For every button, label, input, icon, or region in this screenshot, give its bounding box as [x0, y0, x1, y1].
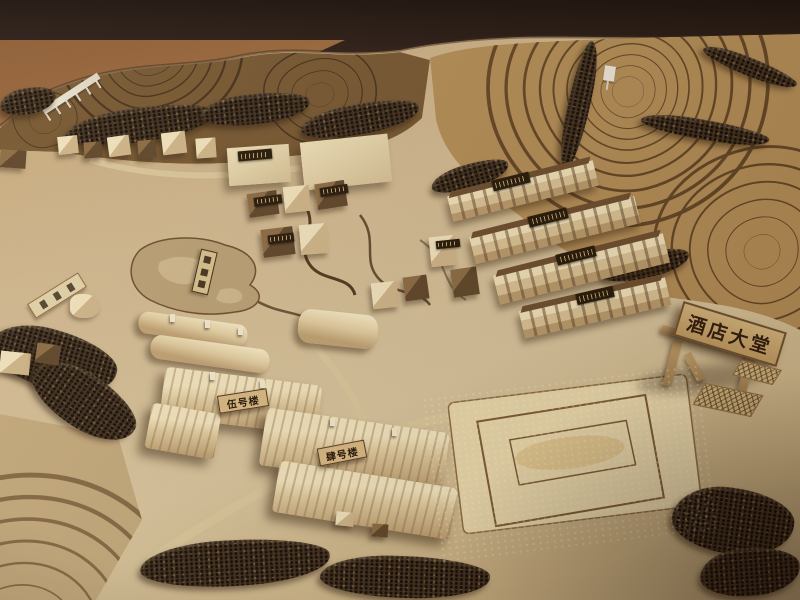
- village-house: [450, 266, 480, 297]
- sign-character-mark: [66, 282, 75, 292]
- village-house: [335, 511, 354, 527]
- chimney: [170, 314, 175, 322]
- village-house: [0, 350, 31, 375]
- chimney: [260, 380, 265, 388]
- terrace-marker-sign: [603, 65, 616, 81]
- plaque-character-mark: [203, 256, 211, 264]
- village-house: [35, 342, 62, 365]
- sand-sparkle: [421, 364, 720, 567]
- photo-of-architectural-model: 伍号楼 肆号楼 酒店大堂: [0, 0, 800, 600]
- village-house: [83, 141, 102, 158]
- flat-roof-block: [300, 134, 393, 191]
- village-house: [0, 149, 27, 169]
- chimney: [238, 327, 243, 335]
- chimney: [210, 372, 215, 380]
- chimney: [205, 320, 210, 328]
- village-house: [107, 135, 132, 158]
- plaque-character-mark: [198, 280, 206, 288]
- sign-character-mark: [39, 299, 48, 309]
- plaque-character-mark: [200, 268, 208, 276]
- village-house: [372, 523, 389, 537]
- village-house: [283, 185, 312, 214]
- village-house: [402, 274, 429, 301]
- village-house: [195, 137, 216, 158]
- stone-blob: [70, 294, 100, 318]
- village-house: [371, 281, 400, 310]
- chimney: [330, 418, 335, 426]
- village-house: [161, 131, 188, 156]
- village-house: [57, 135, 79, 155]
- village-house: [299, 223, 330, 255]
- sign-character-mark: [52, 291, 61, 301]
- village-house: [137, 139, 157, 159]
- chimney: [392, 428, 397, 436]
